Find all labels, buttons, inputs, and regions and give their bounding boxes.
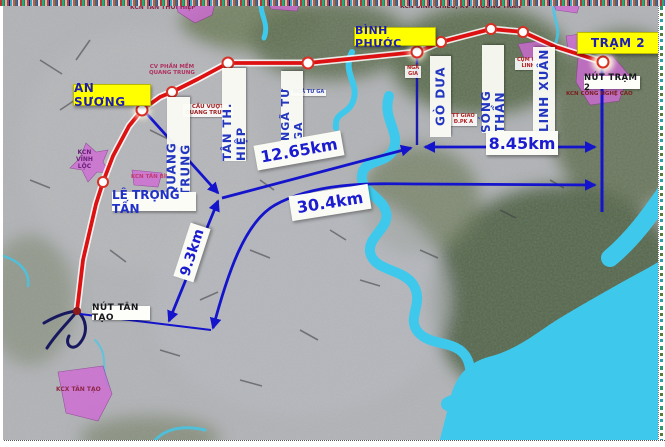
zone-label-kcx-tan-tao: KCX TÂN TẠO [56, 387, 101, 394]
terminal-label-tram-2: TRẠM 2 [577, 32, 659, 54]
scan-artifact-strip [0, 0, 665, 6]
station-strip-linh-xuan: LINH XUÂN [533, 47, 555, 133]
station-strip-go-dua: GÒ DƯA [430, 56, 451, 137]
map-bottom-margin [0, 440, 665, 447]
terminal-label-an-suong: AN SƯƠNG [73, 84, 151, 106]
route-map: AN SƯƠNG BÌNH PHƯỚC TRẠM 2 QUANG TRUNG T… [0, 0, 665, 447]
zone-label-kcn-tan-thoi-hiep: KCN TÂN THỚI HIỆP [130, 5, 196, 12]
zone-label-tt-giao: TT GIAO Đ.PK A [450, 114, 477, 126]
tan-tao-junction-node [73, 307, 81, 315]
satellite-map-canvas [0, 0, 665, 447]
junction-label-nut-tram-2: NÚT TRẠM 2 [584, 76, 640, 89]
station-strip-nga-tu-ga: NGÃ TƯ GA [281, 71, 303, 141]
junction-label-nut-tan-tao: NÚT TÂN TẠO [92, 306, 150, 320]
station-strip-quang-trung: QUANG TRUNG [167, 97, 190, 196]
terminal-label-binh-phuoc: BÌNH PHƯỚC [354, 27, 436, 46]
station-strip-tan-thoi-hiep: TÂN TH. HIỆP [222, 68, 246, 161]
zone-label-nga-gia: NGÃ GIA [405, 66, 421, 78]
road-label-le-trong-tan: LÊ TRỌNG TẤN [112, 192, 196, 211]
station-strip-song-than: SÓNG THẦN [482, 45, 504, 133]
map-left-margin [0, 6, 3, 447]
zone-label-cv-phan-mem: CV PHẦN MỀM QUANG TRUNG [149, 64, 195, 77]
distance-label-8-45km: 8.45km [486, 131, 558, 155]
zone-label-kcn-vinh-loc: KCN VĨNH LỘC [76, 150, 93, 171]
map-right-margin [658, 6, 665, 447]
